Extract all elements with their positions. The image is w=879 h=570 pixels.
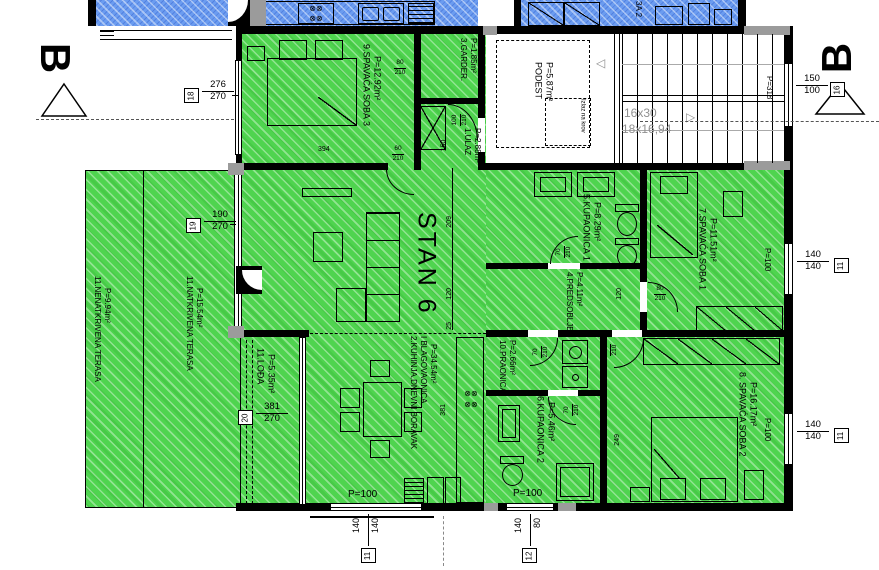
section-line-left — [36, 119, 234, 120]
dim-25: 25 — [446, 322, 453, 330]
room-area: P=4.11m² — [574, 272, 584, 332]
chair — [404, 388, 422, 408]
stair-edge-line — [614, 34, 615, 163]
roof-exit-label: Izlaz na krov — [578, 99, 586, 133]
dishwasher-icon — [404, 478, 424, 504]
stair-mid-line — [622, 101, 784, 102]
stove-icon: ⊗⊗⊗⊗ — [459, 388, 483, 416]
dim-under: 100 — [796, 86, 828, 97]
section-marker-b-left: B — [31, 43, 79, 73]
wardrobe-cell — [644, 339, 678, 364]
dining-table — [363, 382, 402, 437]
terrace-door-arc — [242, 270, 262, 290]
soba3-window — [235, 60, 242, 155]
dim-over: 140 — [797, 250, 829, 261]
room-name: 5.KUPAONICA 1 — [580, 194, 591, 261]
kitchen-appliance — [427, 477, 444, 504]
balcony-rail-hatch — [100, 30, 114, 40]
room-area: P=5.87m² — [543, 62, 554, 101]
dim-ref-box: 11 — [361, 548, 376, 563]
stair-dim1: 16x30 — [624, 106, 657, 120]
sink-basin — [383, 7, 400, 21]
dim-ref-box: 19 — [186, 218, 201, 233]
roof-exit-text: Izlaz na krov — [578, 99, 586, 133]
column — [484, 503, 498, 511]
dim-over: 190 — [204, 210, 236, 221]
dim-right-bottom: 140 140 — [797, 420, 829, 443]
section-marker-b-right: B — [813, 43, 861, 73]
toilet-tank — [500, 456, 524, 464]
room-label-podest: PODEST P=5.87m² — [532, 62, 555, 101]
dim-ref-box: 16 — [830, 82, 845, 97]
coffee-table — [313, 232, 343, 262]
room-name: 11.LOĐA — [254, 348, 265, 393]
dim-leader — [368, 514, 369, 546]
room-label-nenatkrivena: 11.NENATKRIVENA TERASA P=9.94m² — [92, 276, 112, 382]
window-soba1 — [784, 243, 793, 295]
stair-mid-line — [622, 95, 784, 96]
room-area: P=2.66m² — [507, 340, 517, 393]
toilet-icon — [502, 464, 523, 486]
room-area: P=12.92m² — [371, 56, 382, 126]
washing-machine-icon — [562, 340, 588, 364]
room-name: 10.PRAONICA — [497, 340, 507, 393]
room-name: PODEST — [532, 62, 543, 101]
chair — [404, 412, 422, 432]
bed-fold — [318, 97, 356, 125]
apartment-label: STAN 6 — [410, 212, 441, 316]
dim-left-top: 276 270 — [202, 80, 234, 103]
dim-249: 249 — [614, 434, 621, 446]
bed-bench — [700, 478, 726, 500]
soba1-door-opening — [640, 282, 647, 312]
toilet-tank — [615, 204, 639, 212]
window-label-p100: P=100 — [513, 488, 542, 499]
blue-wardrobe — [564, 2, 600, 26]
room-area: P=9.94m² — [102, 288, 112, 382]
door-dim-ulaz: 100210 — [452, 112, 468, 128]
dim-over: 140 — [797, 420, 829, 431]
door-dim-praonica: 70210 — [533, 344, 549, 360]
shower-icon — [556, 463, 594, 501]
column — [558, 503, 576, 511]
column — [250, 0, 266, 28]
window-soba2 — [784, 413, 793, 465]
room-name: 11.NENATKRIVENA TERASA — [92, 276, 102, 382]
floor-plan: ⊗⊗⊗⊗ 3A 2 — [0, 0, 879, 570]
pillow — [279, 40, 307, 60]
door-dim-soba3: 60210 — [390, 146, 406, 162]
loda-glass-wall — [299, 337, 306, 505]
bidet-tank — [615, 238, 639, 245]
stair-dim2: 18x16,94 — [622, 122, 671, 136]
ulaz-wardrobe — [420, 106, 446, 150]
praonica-door-opening — [528, 330, 558, 337]
dim-right-mid: 140 140 — [797, 250, 829, 273]
terrace-divider-line — [143, 171, 144, 507]
dim-120: 120 — [446, 288, 453, 300]
room-name: 11.NATKRIVENA TERASA — [184, 276, 194, 371]
laundry-sink — [562, 366, 588, 388]
blue-room-label: 3A 2 — [633, 1, 643, 17]
nightstand — [247, 46, 265, 61]
dim-leader — [230, 224, 236, 225]
dim-over: 381 — [256, 402, 288, 413]
section-triangle-icon — [40, 82, 88, 118]
stair-edge-line — [619, 34, 620, 163]
room-area: P=1.85m² — [468, 38, 478, 81]
room-label-kupaonica1: 5.KUPAONICA 1 P=8.29m² — [580, 194, 603, 261]
dim-under: 270 — [202, 92, 234, 103]
bidet-icon — [617, 245, 637, 267]
room-label-soba3: 9.SPAVAĆA SOBA 3 P=12.92m² — [360, 44, 383, 126]
room-area: P=15.54m² — [194, 288, 204, 371]
room-area: P=8.29m² — [591, 202, 602, 261]
room-label-praonica: 10.PRAONICA P=2.66m² — [497, 340, 517, 393]
balcony-rail — [100, 30, 232, 40]
dim-under: 140 — [797, 262, 829, 273]
bathroom-cabinet — [498, 405, 520, 442]
kup2-right-wall — [600, 337, 607, 505]
wardrobe-cell — [726, 307, 755, 331]
dim-over: 150 — [796, 74, 828, 85]
kitchen-living-dashed-line — [310, 333, 486, 334]
nightstand — [630, 487, 650, 502]
room-label-soba1: 7.SPAVAĆA SOBA 1 P=11.51m² — [696, 208, 719, 290]
room-name: 6.KUPAONICA 2 — [534, 396, 545, 463]
washer-drum — [569, 346, 582, 359]
soba2-door-opening — [612, 330, 642, 337]
living-top-wall — [236, 163, 388, 170]
dim-over: 276 — [202, 80, 234, 91]
sink-basin — [362, 7, 379, 21]
dim-bottom-right-under: 80 — [533, 518, 542, 528]
window-p318 — [784, 63, 793, 127]
dim-right-top: 150 100 — [796, 74, 828, 97]
dim-left-mid: 190 270 — [204, 210, 236, 233]
blue-left-wall — [88, 0, 96, 26]
window-kup2 — [506, 503, 554, 511]
column — [228, 163, 244, 175]
chair — [340, 388, 360, 408]
door-dim-garder: 80210 — [392, 60, 408, 76]
blue-nightstand — [714, 9, 732, 25]
wardrobe-cell — [755, 307, 783, 331]
chair — [340, 412, 360, 432]
sofa-corner — [336, 288, 366, 322]
room-label-predsoblje: 4.PREDSOBLJE P=4.11m² — [564, 272, 584, 332]
blue-bed-part — [688, 3, 710, 25]
terrace-door-leaf — [236, 266, 262, 294]
window-label-p100: P=100 — [762, 248, 772, 271]
bed-soba1 — [650, 172, 698, 258]
living-terrace-glass — [234, 170, 242, 328]
blue-room-name: 3A 2 — [633, 1, 643, 17]
door-dim-kupaonica1: 70210 — [556, 244, 572, 260]
dim-bottom-left-over: 140 — [352, 518, 361, 533]
washbasin — [534, 172, 572, 197]
washbasin-bowl — [540, 177, 566, 192]
dim-ref-box: 18 — [184, 88, 199, 103]
axis-dashed-line — [443, 516, 444, 566]
nightstand — [744, 470, 764, 500]
dim-under: 270 — [256, 414, 288, 425]
window-label-p318: P=318 — [764, 76, 774, 99]
bed-fold — [654, 449, 680, 479]
door-dim-kupaonica2: 70210 — [564, 402, 580, 418]
bed-soba3 — [267, 58, 357, 126]
blue-door-arc — [228, 0, 248, 22]
sofa — [366, 212, 400, 322]
wardrobe-cell — [678, 339, 712, 364]
shower-tray — [560, 467, 590, 497]
dim-leader — [530, 514, 531, 546]
section-line-right — [640, 121, 879, 122]
sink-icon — [358, 3, 404, 24]
dim-ref-box: 11 — [834, 428, 849, 443]
room-label-garder: 3.GARDER. P=1.85m² — [458, 38, 478, 81]
kitchen-appliance — [445, 477, 461, 504]
blue-room-right-wall — [738, 0, 746, 28]
door-dim-soba2: 80210 — [602, 342, 618, 358]
bed-fold — [657, 225, 693, 255]
dim-ref-box: 12 — [522, 548, 537, 563]
room-name: 3.GARDER. — [458, 38, 468, 81]
garder-ulaz-wall — [421, 98, 480, 104]
dim-bottom-right-over: 140 — [514, 518, 523, 533]
apartment-name: STAN 6 — [410, 212, 441, 316]
stair-arrow-left-icon: ◁ — [596, 56, 605, 70]
wardrobe-cell — [712, 339, 746, 364]
blue-room-left-wall — [514, 0, 521, 28]
column — [228, 326, 244, 338]
door-dim-predsoblje: 80210 — [652, 286, 668, 302]
room-area: P=16.17m² — [747, 382, 758, 457]
window-label-p100: P=100 — [348, 489, 377, 500]
chair — [370, 360, 390, 377]
room-area: P=5.35m² — [265, 354, 276, 393]
dim-120: 120 — [616, 288, 623, 300]
bed-bench — [660, 478, 686, 500]
stair-guide-line — [622, 64, 784, 65]
room-label-soba2: 8. SPAVAĆA SOBA 2 P=16.17m² — [736, 372, 759, 457]
wardrobe-soba2 — [643, 338, 780, 365]
desk — [723, 191, 743, 217]
dim-loda: 381 270 — [256, 402, 288, 425]
room-label-natkrivena: 11.NATKRIVENA TERASA P=15.54m² — [184, 276, 204, 371]
tv-cabinet — [302, 188, 352, 197]
dishwasher-icon — [408, 3, 434, 24]
loda-top-wall — [241, 330, 309, 337]
cabinet-inner — [502, 409, 516, 438]
blue-bed-part — [655, 6, 683, 25]
washbasin-bowl — [583, 177, 609, 192]
top-wall — [236, 26, 790, 34]
wardrobe-cell — [746, 339, 779, 364]
dim-leader — [232, 95, 238, 96]
room-label-loda: 11.LOĐA P=5.35m² — [254, 348, 277, 393]
pillow — [315, 40, 343, 60]
room-name: 4.PREDSOBLJE — [564, 272, 574, 332]
dim-under: 140 — [797, 432, 829, 443]
dim-209: 209 — [446, 216, 453, 228]
blue-wardrobe — [528, 2, 564, 26]
room-name: 9.SPAVAĆA SOBA 3 — [360, 44, 371, 126]
dim-394: 394 — [318, 146, 330, 153]
room-area: P=11.51m² — [707, 218, 718, 290]
toilet-icon — [617, 212, 637, 236]
wardrobe-cell — [697, 307, 726, 331]
window-label-p100: P=100 — [762, 418, 772, 441]
stair-treads — [622, 34, 784, 163]
room-area: P=34.54m² — [428, 344, 438, 449]
dim-ref-box: 20 — [238, 410, 253, 425]
washbasin — [577, 172, 615, 197]
sink-drain — [572, 374, 579, 381]
window-kitchen — [330, 503, 422, 511]
dim-ref-box: 11 — [834, 258, 849, 273]
living-dim-line — [452, 168, 453, 330]
wardrobe-soba1 — [696, 306, 783, 332]
column — [483, 26, 497, 35]
dim-bottom-left-under: 140 — [371, 518, 380, 533]
dim-381: 381 — [440, 404, 447, 416]
pillow — [660, 176, 688, 194]
chair — [370, 440, 390, 458]
stove-icon: ⊗⊗⊗⊗ — [298, 3, 334, 24]
